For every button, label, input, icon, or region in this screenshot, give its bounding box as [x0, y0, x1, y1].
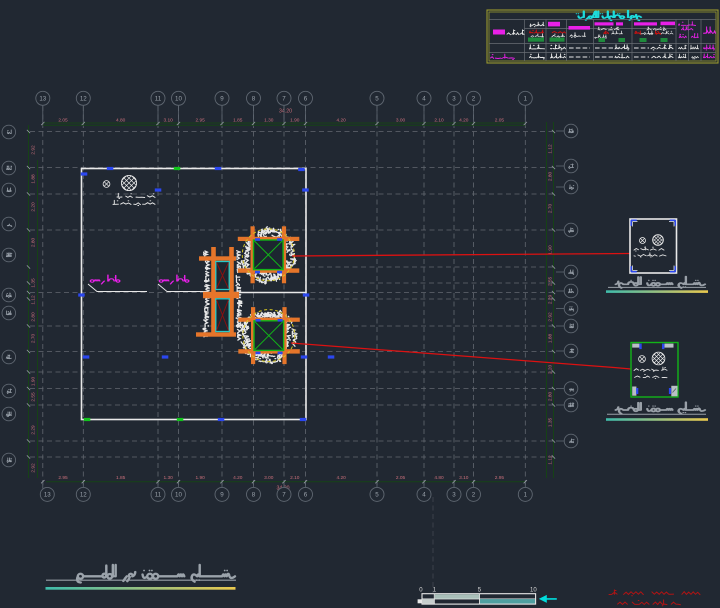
svg-text:1.90: 1.90 — [196, 475, 206, 481]
svg-text:12: 12 — [80, 96, 87, 103]
svg-text:2.20: 2.20 — [31, 202, 37, 212]
svg-text:3.10: 3.10 — [459, 475, 469, 481]
svg-text:7: 7 — [282, 492, 286, 499]
svg-text:12: 12 — [80, 492, 87, 499]
svg-text:4.20: 4.20 — [337, 118, 347, 124]
svg-text:2.70: 2.70 — [548, 204, 554, 214]
svg-text:10: 10 — [175, 96, 182, 103]
svg-text:2.92: 2.92 — [31, 463, 37, 473]
svg-text:7: 7 — [282, 96, 286, 103]
svg-text:5: 5 — [375, 492, 379, 499]
svg-text:2: 2 — [472, 96, 476, 103]
svg-text:6: 6 — [304, 492, 308, 499]
svg-text:11: 11 — [155, 96, 162, 103]
svg-text:3.00: 3.00 — [264, 475, 274, 481]
svg-text:1.85: 1.85 — [233, 118, 243, 124]
svg-text:2.92: 2.92 — [548, 312, 554, 322]
svg-text:2.10: 2.10 — [434, 118, 444, 124]
svg-text:2.80: 2.80 — [548, 392, 554, 402]
svg-text:1.88: 1.88 — [31, 174, 37, 184]
svg-text:1.85: 1.85 — [116, 475, 126, 481]
svg-text:5: 5 — [375, 96, 379, 103]
svg-text:1.35: 1.35 — [548, 418, 554, 428]
svg-text:1: 1 — [524, 492, 528, 499]
svg-text:2.05: 2.05 — [396, 475, 406, 481]
svg-text:2.29: 2.29 — [548, 295, 554, 305]
svg-text:4.20: 4.20 — [337, 475, 347, 481]
svg-text:2.05: 2.05 — [58, 118, 68, 124]
svg-text:2.92: 2.92 — [31, 145, 37, 155]
svg-text:2.95: 2.95 — [58, 475, 68, 481]
svg-text:1.12: 1.12 — [31, 295, 37, 305]
svg-text:8: 8 — [252, 96, 256, 103]
svg-text:3: 3 — [452, 492, 456, 499]
svg-text:4: 4 — [422, 492, 426, 499]
svg-text:13: 13 — [39, 96, 46, 103]
svg-text:13: 13 — [44, 492, 51, 499]
svg-text:34.20: 34.20 — [279, 108, 292, 114]
svg-text:2.20: 2.20 — [548, 365, 554, 375]
svg-text:9: 9 — [220, 96, 224, 103]
svg-text:2.29: 2.29 — [31, 425, 37, 435]
svg-text:1.90: 1.90 — [31, 377, 37, 387]
svg-text:2: 2 — [472, 492, 476, 499]
svg-text:1.88: 1.88 — [548, 334, 554, 344]
svg-text:2.70: 2.70 — [31, 334, 37, 344]
svg-text:10: 10 — [175, 492, 182, 499]
svg-text:4.80: 4.80 — [116, 118, 126, 124]
svg-text:1.12: 1.12 — [548, 144, 554, 154]
svg-text:6: 6 — [304, 96, 308, 103]
svg-text:1.90: 1.90 — [548, 245, 554, 255]
svg-text:3.00: 3.00 — [396, 118, 406, 124]
svg-text:1: 1 — [524, 96, 528, 103]
svg-text:2.55: 2.55 — [548, 277, 554, 287]
svg-text:1.90: 1.90 — [290, 118, 300, 124]
svg-text:2.55: 2.55 — [31, 392, 37, 402]
svg-text:11: 11 — [155, 492, 162, 499]
svg-text:4.80: 4.80 — [434, 475, 444, 481]
svg-text:3.10: 3.10 — [164, 118, 174, 124]
svg-text:1.12: 1.12 — [548, 455, 554, 465]
svg-text:1.30: 1.30 — [264, 118, 274, 124]
svg-text:2.80: 2.80 — [31, 238, 37, 248]
svg-text:2.95: 2.95 — [196, 118, 206, 124]
svg-text:1.30: 1.30 — [164, 475, 174, 481]
svg-text:2.05: 2.05 — [495, 118, 505, 124]
svg-text:10: 10 — [530, 587, 537, 593]
svg-text:4.20: 4.20 — [233, 475, 243, 481]
svg-text:4.20: 4.20 — [459, 118, 469, 124]
svg-text:2.80: 2.80 — [548, 172, 554, 182]
svg-text:3: 3 — [452, 96, 456, 103]
svg-text:2.10: 2.10 — [290, 475, 300, 481]
svg-text:2.80: 2.80 — [31, 312, 37, 322]
svg-text:9: 9 — [220, 492, 224, 499]
svg-text:2.95: 2.95 — [495, 475, 505, 481]
svg-text:8: 8 — [252, 492, 256, 499]
svg-text:4: 4 — [422, 96, 426, 103]
svg-text:1.35: 1.35 — [31, 278, 37, 288]
